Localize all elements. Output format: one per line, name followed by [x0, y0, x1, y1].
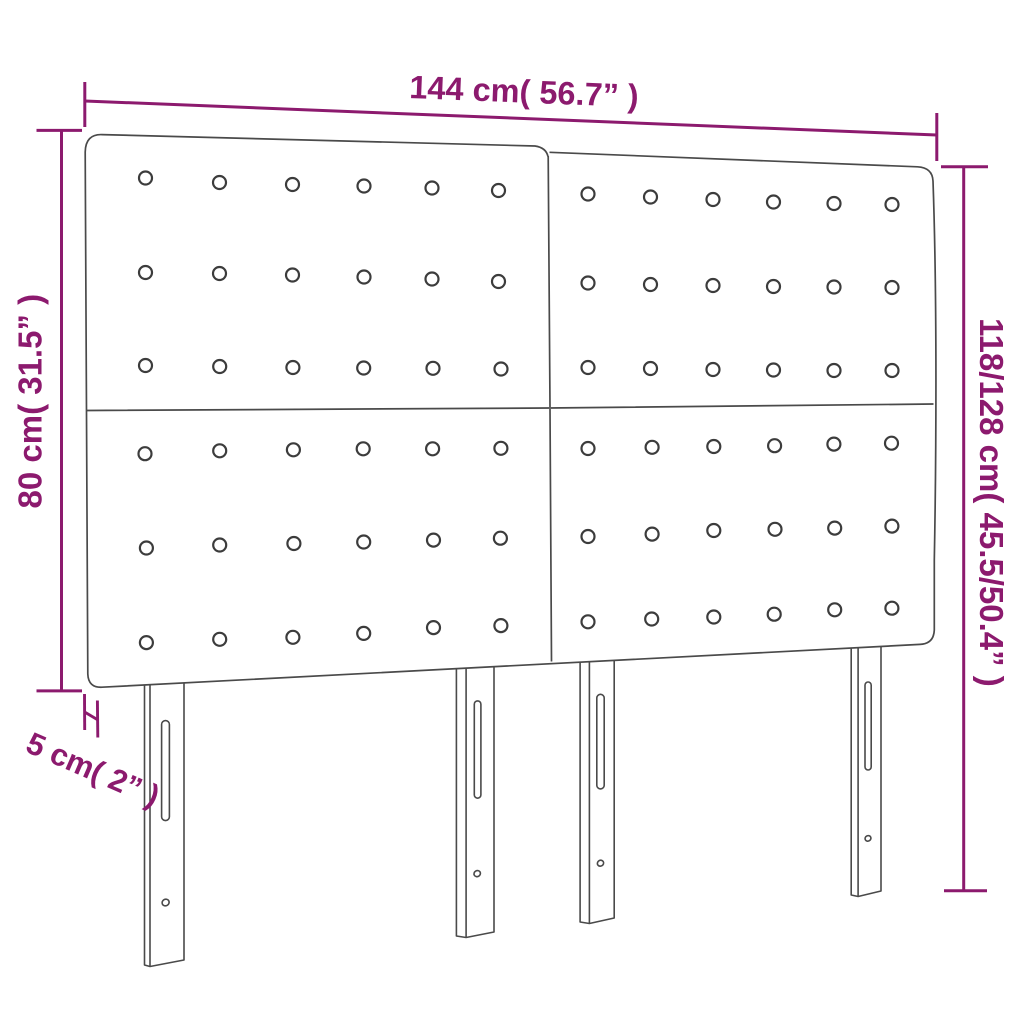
- svg-text:80 cm( 31.5” ): 80 cm( 31.5” ): [12, 294, 49, 509]
- svg-text:118/128 cm( 45.5/50.4” ): 118/128 cm( 45.5/50.4” ): [973, 318, 1010, 687]
